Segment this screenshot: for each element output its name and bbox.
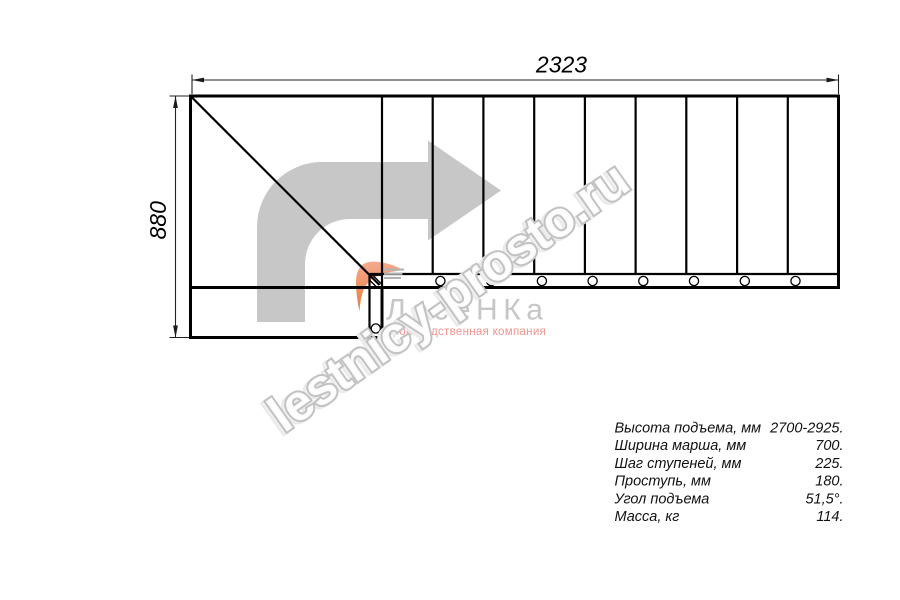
svg-text:180.: 180. bbox=[815, 474, 843, 490]
svg-text:114.: 114. bbox=[816, 509, 843, 525]
svg-text:225.: 225. bbox=[814, 456, 843, 472]
svg-text:2700-2925.: 2700-2925. bbox=[769, 421, 843, 437]
svg-text:880: 880 bbox=[145, 201, 171, 240]
svg-text:Высота подъема, мм: Высота подъема, мм bbox=[615, 421, 762, 437]
svg-text:2323: 2323 bbox=[535, 52, 587, 78]
svg-text:Угол подъема: Угол подъема bbox=[614, 491, 710, 507]
svg-text:51,5°.: 51,5°. bbox=[805, 491, 843, 507]
svg-text:Проступь, мм: Проступь, мм bbox=[615, 474, 711, 490]
svg-text:Масса, кг: Масса, кг bbox=[615, 509, 680, 525]
svg-text:Шаг ступеней, мм: Шаг ступеней, мм bbox=[615, 456, 742, 472]
svg-text:Ширина марша, мм: Ширина марша, мм bbox=[615, 438, 747, 454]
svg-text:700.: 700. bbox=[815, 438, 843, 454]
